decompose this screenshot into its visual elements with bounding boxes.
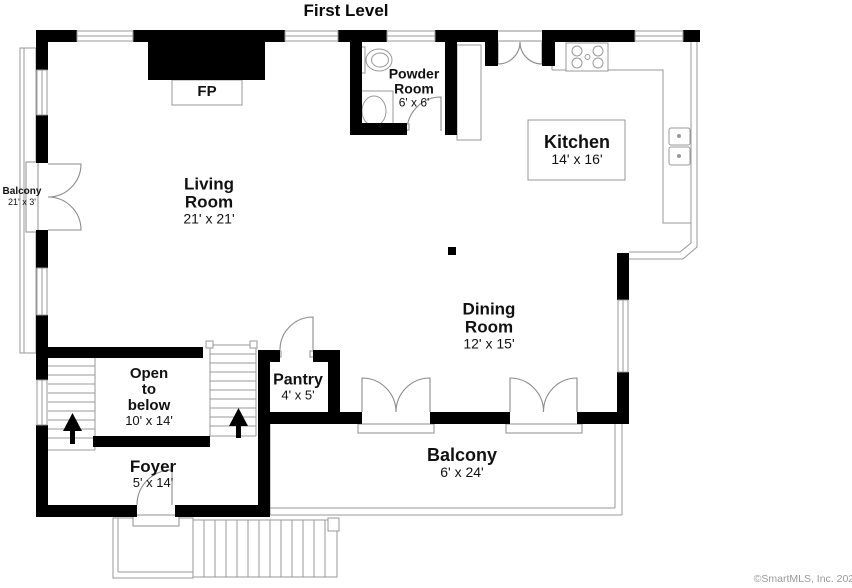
kitchen-dims: 14' x 16' xyxy=(544,152,610,167)
balcony-rear-name: Balcony xyxy=(427,446,497,465)
fireplace-label-text: FP xyxy=(197,84,216,100)
powder-room-dims: 6' x 6' xyxy=(389,97,440,110)
dining-room-label: Dining Room 12' x 15' xyxy=(463,300,516,351)
kitchen-double-sink-icon xyxy=(669,128,690,165)
window-icon xyxy=(618,300,628,372)
kitchen-label: Kitchen 14' x 16' xyxy=(544,133,610,167)
window-icon xyxy=(285,31,338,41)
cooktop-icon xyxy=(566,43,608,71)
balcony-rear-label: Balcony 6' x 24' xyxy=(427,446,497,480)
pantry-dims: 4' x 5' xyxy=(273,389,323,403)
stairs-up-arrow-icon xyxy=(229,408,248,438)
window-icon xyxy=(635,31,683,41)
door-icon xyxy=(275,317,316,357)
open-to-below-line2: to xyxy=(125,382,173,398)
powder-room-name-line2: Room xyxy=(389,82,440,97)
open-to-below-dims: 10' x 14' xyxy=(125,414,173,428)
exterior-entry-stairs xyxy=(193,518,339,577)
dining-room-name-line1: Dining xyxy=(463,300,516,318)
living-room-name-line2: Room xyxy=(183,194,234,212)
closet xyxy=(457,45,481,140)
doors xyxy=(26,31,582,526)
french-door-icon xyxy=(358,378,434,433)
window-icon xyxy=(37,268,47,315)
balcony-left-label: Balcony 21' x 3' xyxy=(3,187,42,207)
structural-post xyxy=(448,247,456,255)
open-to-below-line3: below xyxy=(125,398,173,414)
kitchen-name: Kitchen xyxy=(544,133,610,152)
french-door-icon xyxy=(506,378,582,433)
powder-room-name-line1: Powder xyxy=(389,67,440,82)
pantry-name: Pantry xyxy=(273,371,323,388)
living-room-dims: 21' x 21' xyxy=(183,212,234,227)
french-door-icon xyxy=(494,31,546,64)
entry-landing xyxy=(113,518,193,578)
balcony-left-dims: 21' x 3' xyxy=(3,198,42,208)
fireplace-icon xyxy=(148,42,265,80)
pantry-label: Pantry 4' x 5' xyxy=(273,371,323,402)
powder-room-label: Powder Room 6' x 6' xyxy=(389,67,440,110)
window-icon xyxy=(37,380,47,425)
floor-plan-page: First Level FP Living Room 21' x 21' Pow… xyxy=(0,0,852,588)
window-icon xyxy=(37,70,47,115)
watermark: ©SmartMLS, Inc. 2022 xyxy=(754,573,852,585)
page-title: First Level xyxy=(303,1,388,21)
open-to-below-line1: Open xyxy=(125,366,173,382)
living-room-name-line1: Living xyxy=(183,175,234,193)
foyer-dims: 5' x 14' xyxy=(130,476,176,490)
foyer-label: Foyer 5' x 14' xyxy=(130,458,176,490)
balcony-rear-dims: 6' x 24' xyxy=(427,465,497,480)
stairs-up-arrow-icon xyxy=(63,413,82,444)
foyer-name: Foyer xyxy=(130,458,176,476)
living-room-label: Living Room 21' x 21' xyxy=(183,175,234,226)
fireplace-label: FP xyxy=(197,84,216,100)
dining-room-name-line2: Room xyxy=(463,319,516,337)
window-icon xyxy=(77,31,133,41)
window-icon xyxy=(387,31,435,41)
open-to-below-label: Open to below 10' x 14' xyxy=(125,366,173,428)
dining-room-dims: 12' x 15' xyxy=(463,337,516,352)
